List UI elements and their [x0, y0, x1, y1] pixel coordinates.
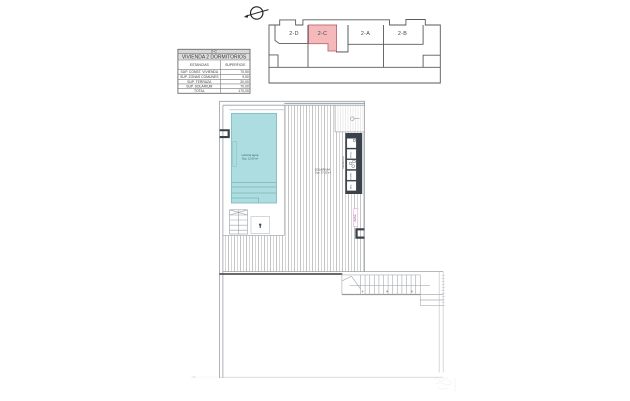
- svg-text:VIVIENDA 2 DORMITORIOS: VIVIENDA 2 DORMITORIOS: [182, 54, 247, 60]
- svg-text:170,00: 170,00: [238, 89, 248, 93]
- svg-text:Sup. 12,00 m²: Sup. 12,00 m²: [242, 156, 258, 160]
- svg-text:2-C: 2-C: [318, 31, 327, 37]
- svg-text:20,00: 20,00: [240, 80, 249, 84]
- svg-text:SUPERFICIE: SUPERFICIE: [225, 63, 246, 67]
- svg-text:TOTAL: TOTAL: [194, 89, 205, 93]
- svg-text:ESTANCIAS: ESTANCIAS: [190, 63, 210, 67]
- svg-text:FRIGO: FRIGO: [351, 151, 353, 158]
- svg-text:SUP. TERRAZA: SUP. TERRAZA: [187, 80, 212, 84]
- svg-text:A/AC: A/AC: [353, 213, 357, 221]
- svg-text:9,50: 9,50: [242, 75, 249, 79]
- svg-text:BBQ: BBQ: [351, 184, 353, 189]
- svg-text:HORNO: HORNO: [351, 172, 353, 180]
- svg-text:Sup. 57,30 m²: Sup. 57,30 m²: [315, 171, 331, 174]
- svg-text:2-A: 2-A: [361, 31, 370, 37]
- svg-text:SUP. CONST. VIVIENDA: SUP. CONST. VIVIENDA: [180, 70, 218, 74]
- svg-text:70,00: 70,00: [240, 85, 249, 89]
- svg-text:SUP. SOLARIUM: SUP. SOLARIUM: [186, 85, 212, 89]
- svg-text:2-D: 2-D: [289, 31, 298, 37]
- svg-text:2-B: 2-B: [398, 31, 407, 37]
- svg-text:Lámina agua: Lámina agua: [242, 153, 259, 157]
- svg-text:2-C: 2-C: [211, 50, 217, 54]
- svg-text:SUP. ZONAS COMUNES: SUP. ZONAS COMUNES: [180, 75, 219, 79]
- svg-text:BARBACOA: BARBACOA: [342, 156, 345, 169]
- svg-text:70,50: 70,50: [240, 70, 249, 74]
